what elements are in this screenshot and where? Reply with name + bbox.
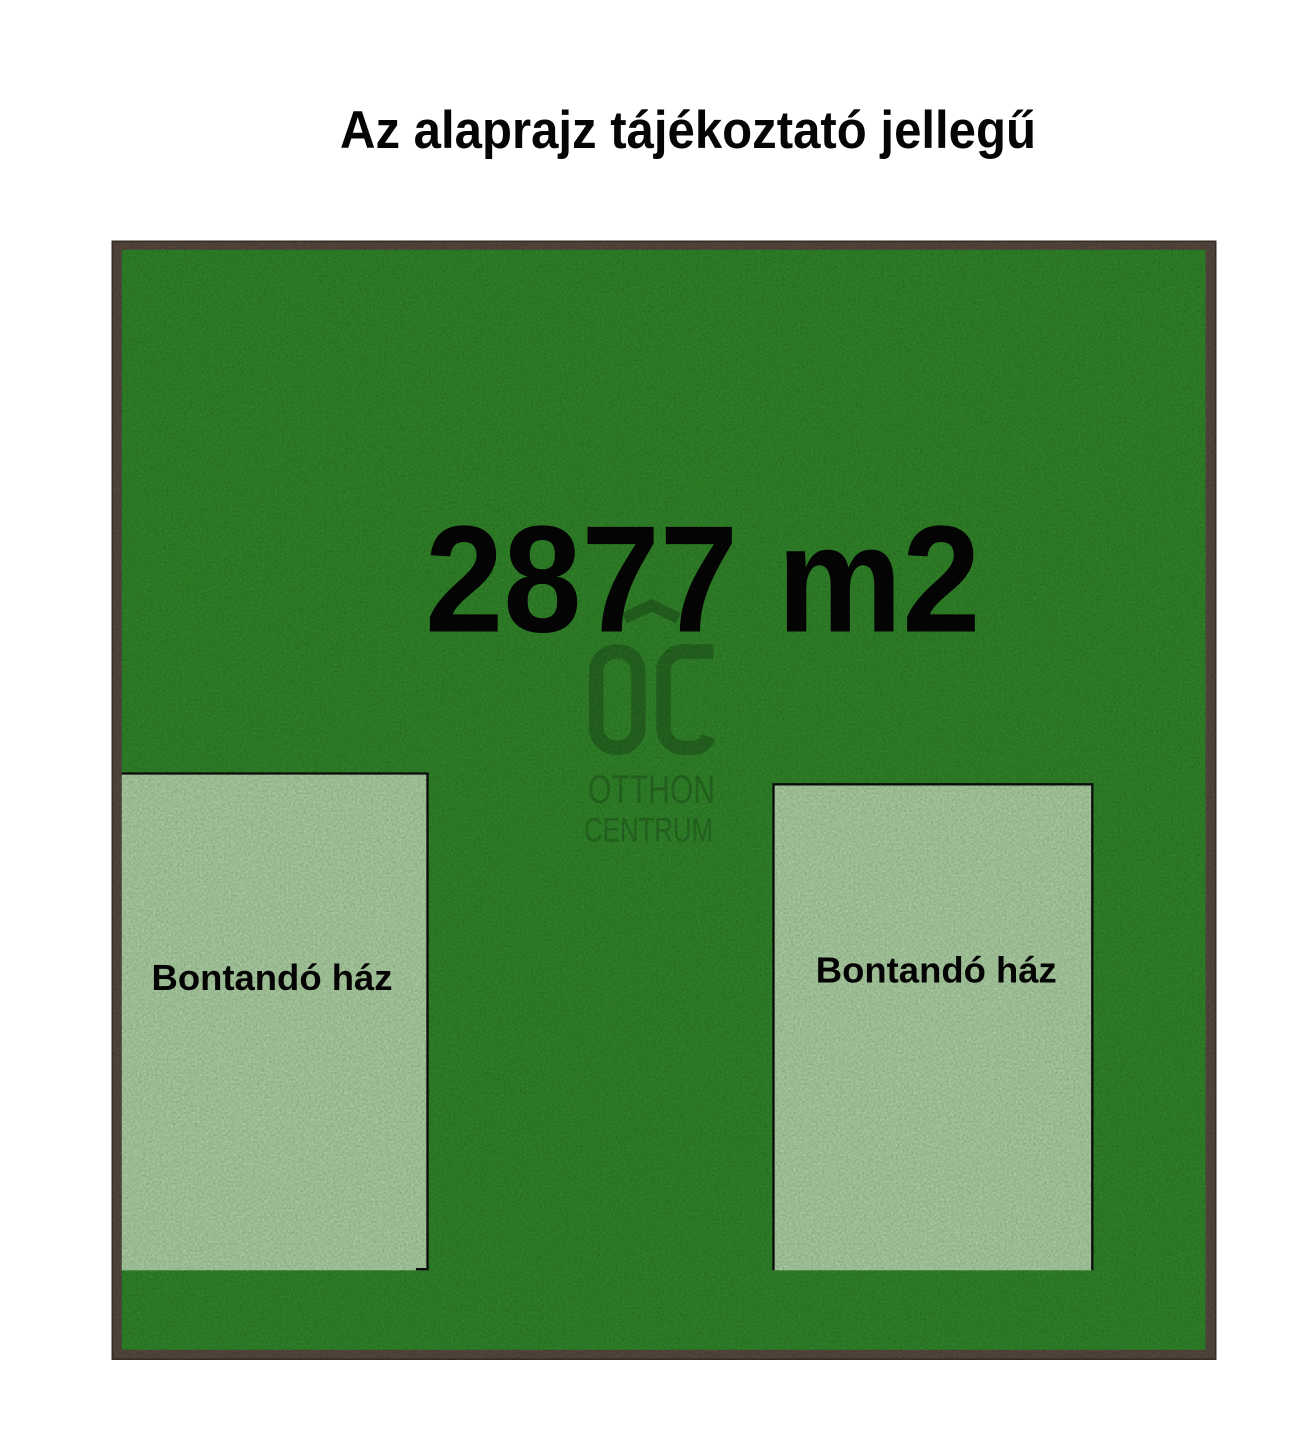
svg-text:Az alaprajz tájékoztató jelleg: Az alaprajz tájékoztató jellegű bbox=[340, 101, 1036, 160]
